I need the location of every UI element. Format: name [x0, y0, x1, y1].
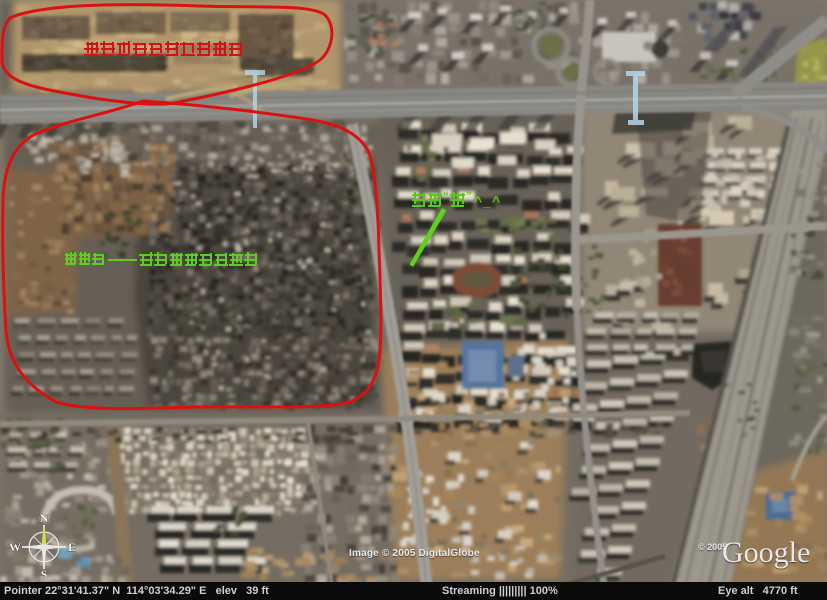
svg-text:W: W: [9, 540, 21, 554]
svg-text:S: S: [41, 567, 48, 581]
svg-text:N: N: [40, 511, 49, 525]
svg-text:E: E: [68, 540, 76, 554]
